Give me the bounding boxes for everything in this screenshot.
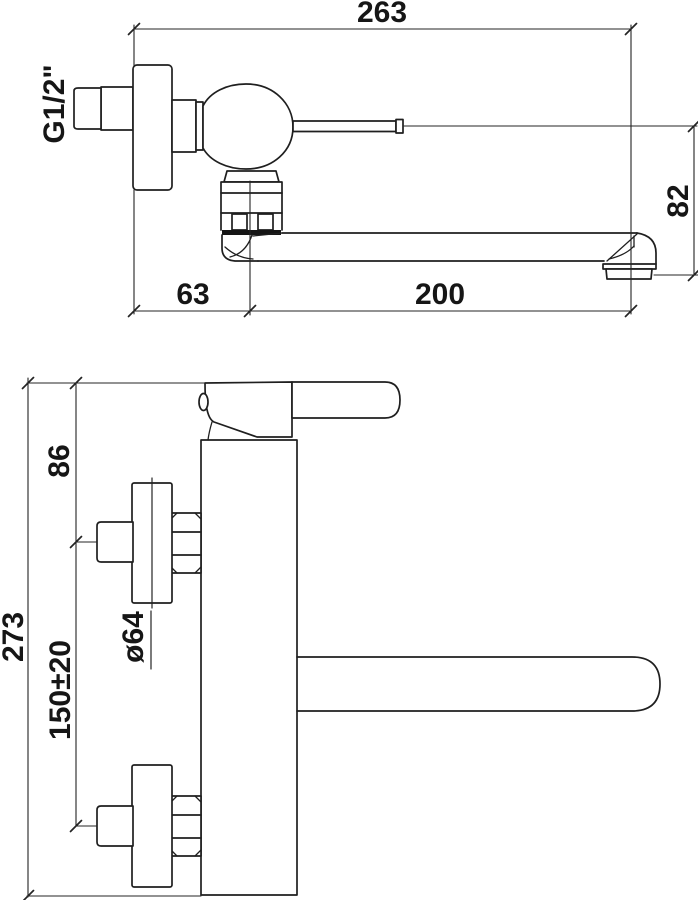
dimension-63-wall-to-axis: 63 — [176, 280, 209, 310]
dimension-200-spout-reach: 200 — [415, 280, 465, 310]
front-lower-nipple — [97, 806, 133, 846]
drawing-geometry — [74, 65, 660, 895]
front-lower-nut — [171, 796, 201, 856]
dimension-82-spout-drop: 82 — [664, 184, 694, 217]
side-lever-handle — [293, 121, 396, 132]
faucet-technical-drawing: 263 G1/2" 82 63 200 86 150±20 ø64 273 — [0, 0, 698, 900]
front-spout — [297, 657, 660, 711]
front-handle-hub — [205, 382, 292, 437]
side-mixer-body — [203, 84, 293, 169]
dimension-phi64-flange-diameter: ø64 — [119, 611, 149, 663]
dimension-150-20-inlet-spacing: 150±20 — [46, 640, 76, 740]
dimension-lines — [23, 24, 698, 900]
side-wall-flange — [133, 65, 172, 190]
dimension-263-overall-depth: 263 — [357, 0, 407, 28]
faucet-drawing-canvas — [0, 0, 698, 900]
front-lower-flange — [132, 765, 172, 887]
front-lever-handle — [292, 382, 400, 418]
dimension-273-overall-height: 273 — [0, 612, 29, 662]
thread-label-g1-2: G1/2" — [40, 64, 70, 143]
front-upper-nipple — [97, 522, 133, 562]
side-inlet-nipple — [101, 87, 133, 130]
front-upper-nut — [171, 513, 201, 573]
front-body — [201, 440, 297, 895]
dimension-86-top-to-inlet: 86 — [45, 444, 75, 477]
